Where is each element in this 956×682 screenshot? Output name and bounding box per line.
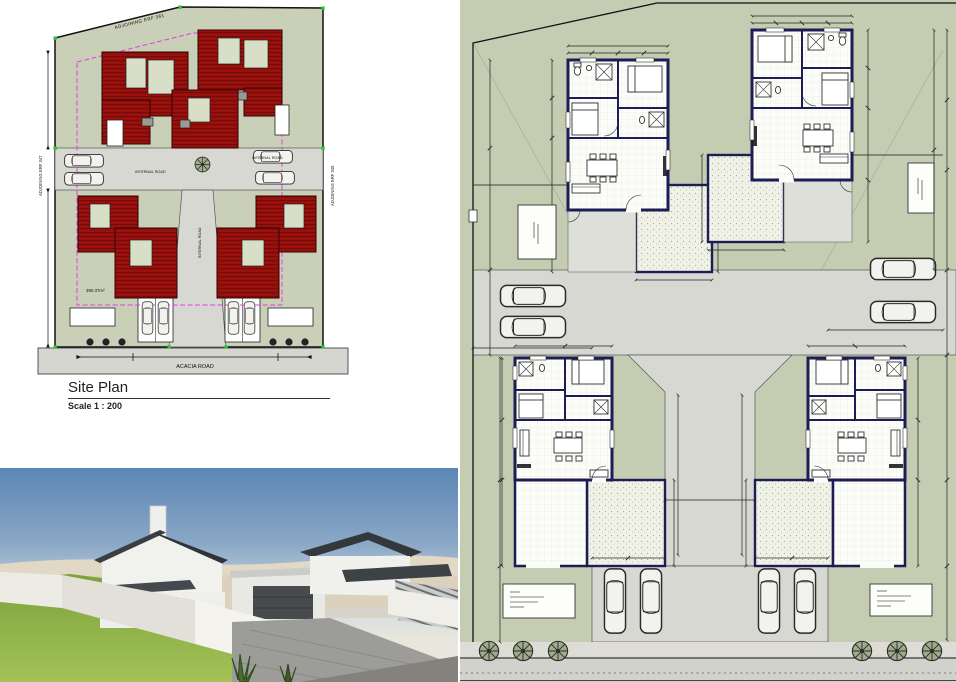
basin [586, 65, 591, 70]
note-box [518, 205, 556, 259]
adjoining-erf-345-label: ADJOINING ERF 345 [330, 165, 335, 206]
note-box [870, 584, 932, 616]
garage-door [253, 586, 313, 619]
internal-road-label-south: INTERNAL ROAD [198, 227, 202, 258]
title-underline [68, 398, 330, 399]
toilet [639, 116, 644, 123]
bed [572, 103, 598, 135]
bed [519, 394, 543, 418]
architectural-drawing-sheet: ACACIA ROAD [0, 0, 956, 682]
site-plan-title: Site Plan [68, 379, 330, 396]
bed [628, 66, 662, 92]
stand-area-label: 390.37m² [86, 288, 105, 293]
building-middle [172, 90, 238, 148]
sidewalk [460, 642, 956, 658]
tv-unit [517, 464, 531, 468]
sofa [572, 184, 600, 193]
site-plan-title-block: Site Plan Scale 1 : 200 [68, 379, 330, 411]
acacia-road-label: ACACIA ROAD [176, 364, 214, 370]
exterior-3d-render [0, 468, 458, 682]
bed [572, 360, 604, 384]
sofa [520, 430, 529, 456]
site-plan-drawing: ACACIA ROAD [30, 0, 352, 378]
adjoining-erf-347-label: ADJOINING ERF 347 [38, 155, 43, 196]
site-plan-scale: Scale 1 : 200 [68, 401, 330, 411]
dining-table [554, 432, 582, 461]
internal-road-label-east: INTERNAL ROAD [252, 156, 283, 160]
dining-table [587, 154, 617, 182]
toilet [574, 67, 580, 75]
garage-wing [515, 480, 587, 566]
toilet [539, 364, 544, 371]
acacia-road: ACACIA ROAD [38, 348, 348, 374]
internal-road-label-west: INTERNAL ROAD [135, 170, 166, 174]
site-tree-icon [195, 157, 210, 172]
note-box [503, 584, 575, 618]
floor-plan-drawing [460, 0, 956, 682]
note-box [908, 163, 934, 213]
courtyard [587, 480, 665, 566]
street-road [460, 658, 956, 682]
